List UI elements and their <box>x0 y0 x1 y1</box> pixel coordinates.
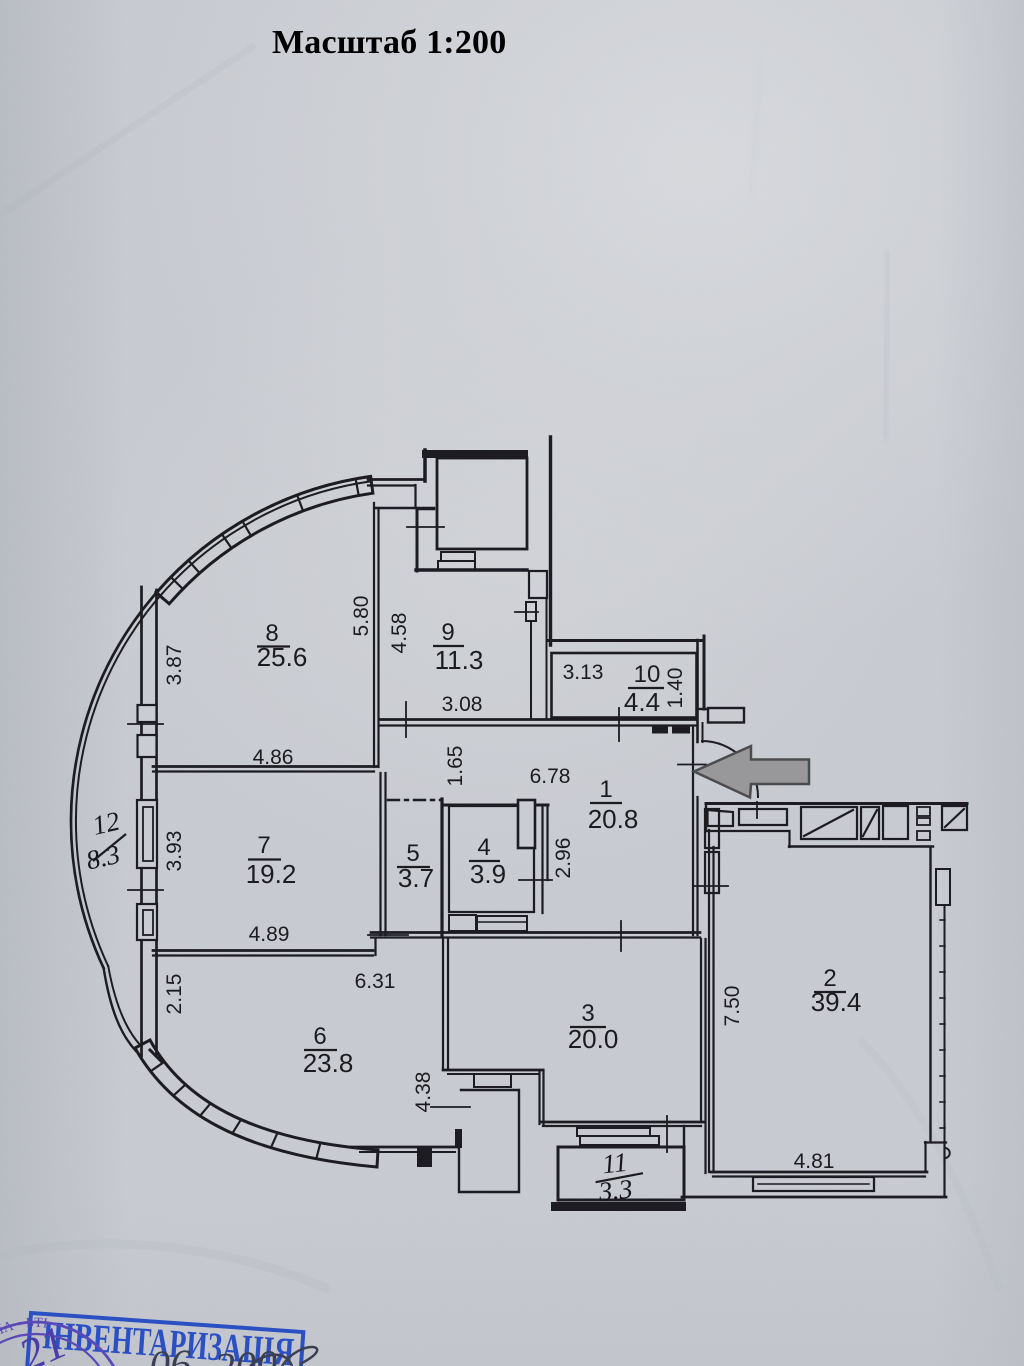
svg-text:19.2: 19.2 <box>246 859 297 889</box>
svg-text:06: 06 <box>148 1342 192 1366</box>
svg-text:1.65: 1.65 <box>444 746 467 787</box>
svg-text:7: 7 <box>257 832 270 859</box>
svg-text:3.7: 3.7 <box>398 863 434 893</box>
svg-text:4.86: 4.86 <box>253 746 294 769</box>
svg-text:3.9: 3.9 <box>470 859 506 889</box>
svg-text:23.8: 23.8 <box>303 1048 354 1078</box>
svg-text:7.50: 7.50 <box>721 986 744 1027</box>
svg-text:20.8: 20.8 <box>588 804 639 834</box>
svg-text:3.3: 3.3 <box>596 1173 634 1206</box>
svg-text:20.0: 20.0 <box>568 1024 619 1054</box>
svg-text:4: 4 <box>477 834 490 861</box>
svg-text:4.81: 4.81 <box>794 1150 835 1173</box>
svg-text:2.96: 2.96 <box>552 838 575 879</box>
svg-text:2.15: 2.15 <box>163 974 186 1015</box>
svg-text:Масштаб 1:200: Масштаб 1:200 <box>272 24 506 61</box>
svg-text:3.13: 3.13 <box>563 661 604 684</box>
svg-text:11.3: 11.3 <box>435 645 484 675</box>
svg-text:4.38: 4.38 <box>412 1072 435 1113</box>
svg-text:1: 1 <box>599 776 612 803</box>
svg-text:5.80: 5.80 <box>350 596 373 637</box>
svg-text:4.89: 4.89 <box>249 923 290 946</box>
svg-text:10: 10 <box>634 661 661 688</box>
svg-text:39.4: 39.4 <box>811 987 862 1017</box>
svg-text:6: 6 <box>313 1023 326 1050</box>
svg-text:9: 9 <box>441 619 454 646</box>
svg-text:3: 3 <box>581 1000 594 1027</box>
svg-text:3.87: 3.87 <box>163 645 186 686</box>
svg-text:6.31: 6.31 <box>355 970 396 993</box>
svg-text:6.78: 6.78 <box>530 765 571 788</box>
svg-text:1.40: 1.40 <box>664 668 687 709</box>
svg-text:4.58: 4.58 <box>388 613 411 654</box>
svg-text:25.6: 25.6 <box>257 642 308 672</box>
svg-text:3.93: 3.93 <box>163 831 186 872</box>
svg-text:3.08: 3.08 <box>442 693 483 716</box>
svg-text:4.4: 4.4 <box>624 687 660 717</box>
